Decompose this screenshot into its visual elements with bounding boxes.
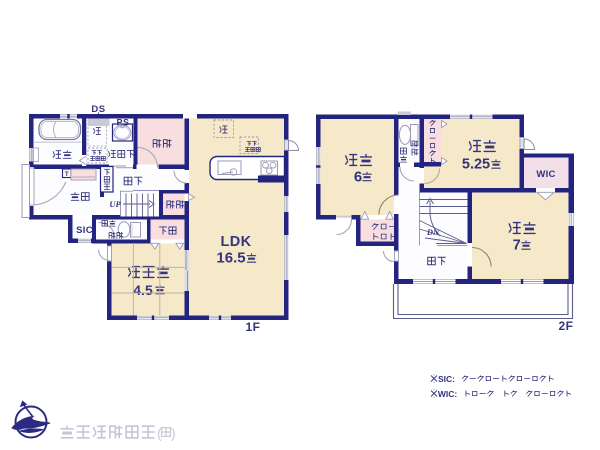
svg-text:SIC:: SIC:	[438, 374, 455, 384]
svg-text:6: 6	[354, 169, 362, 186]
svg-text:LDK: LDK	[220, 234, 251, 250]
svg-text:16.5: 16.5	[216, 250, 245, 267]
svg-text:2F: 2F	[558, 319, 573, 333]
svg-text:T: T	[65, 171, 69, 178]
svg-text:5.25: 5.25	[462, 157, 490, 173]
svg-text:7: 7	[513, 238, 521, 254]
svg-text:1F: 1F	[245, 320, 260, 334]
svg-text:SIC: SIC	[76, 225, 93, 236]
svg-text:DN: DN	[426, 227, 440, 237]
svg-text:4.5: 4.5	[133, 282, 153, 298]
svg-text:WIC:: WIC:	[438, 389, 458, 399]
svg-text:PS: PS	[116, 118, 129, 128]
svg-text:UP: UP	[109, 199, 121, 209]
svg-text:WIC: WIC	[536, 169, 555, 180]
svg-text:): )	[171, 425, 176, 441]
